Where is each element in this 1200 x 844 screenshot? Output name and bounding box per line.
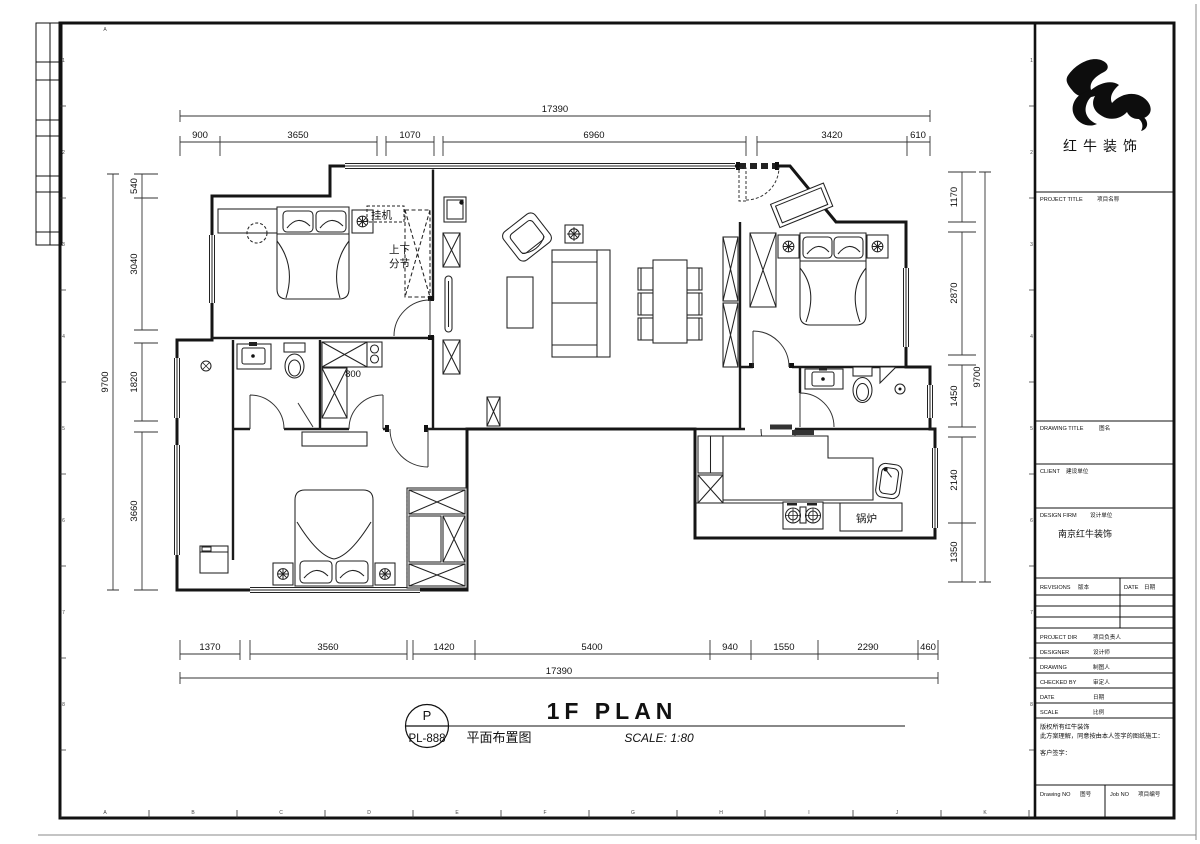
svg-text:3: 3	[1030, 242, 1033, 248]
master-bed	[800, 233, 866, 325]
countertop	[723, 436, 873, 500]
svg-text:5: 5	[62, 426, 65, 432]
drawing-title-en: 1F PLAN	[547, 698, 678, 724]
grid-letter-top: A	[103, 27, 107, 33]
date-col-label: DATE	[1124, 585, 1139, 591]
svg-text:项目编号: 项目编号	[1138, 790, 1161, 798]
boiler-label: 锅炉	[856, 513, 877, 525]
wall-niche	[302, 432, 367, 446]
sofa	[552, 250, 610, 357]
svg-text:6: 6	[1030, 518, 1033, 524]
svg-text:2870: 2870	[949, 282, 960, 303]
design-firm-value: 南京红牛装饰	[1058, 528, 1112, 539]
svg-text:制图人: 制图人	[1093, 663, 1110, 671]
svg-text:1: 1	[62, 58, 65, 64]
svg-text:D: D	[367, 810, 371, 816]
copyright-note: 版权所有红牛装饰	[1040, 723, 1090, 731]
armchair	[500, 211, 554, 264]
client-label: CLIENT	[1040, 469, 1060, 475]
living-room-furniture	[487, 211, 738, 426]
master-bedroom-furniture	[750, 233, 888, 325]
entry-furniture	[771, 183, 833, 228]
svg-text:比例: 比例	[1093, 708, 1105, 716]
company-name: 红牛装饰	[1063, 138, 1143, 154]
entry-door	[739, 167, 779, 201]
grid-letters-bottom: A B C D E F G H I J K	[103, 810, 987, 816]
sheet-letter: P	[423, 708, 432, 723]
svg-text:3040: 3040	[129, 253, 140, 274]
svg-text:1350: 1350	[949, 541, 960, 562]
svg-text:3420: 3420	[821, 130, 842, 141]
drawing-title-footer: P PL-888 1F PLAN 平面布置图 SCALE: 1:80	[406, 698, 906, 748]
svg-text:4: 4	[62, 334, 65, 340]
svg-text:940: 940	[722, 642, 738, 653]
dim-top-total: 17390	[542, 104, 568, 115]
svg-text:1550: 1550	[773, 642, 794, 653]
svg-text:A: A	[103, 810, 107, 816]
svg-text:图号: 图号	[1080, 790, 1092, 798]
svg-text:3: 3	[62, 242, 65, 248]
date-label: DATE	[1040, 695, 1055, 701]
svg-text:3660: 3660	[129, 500, 140, 521]
drawing-label: DRAWING	[1040, 665, 1067, 671]
svg-text:图名: 图名	[1099, 424, 1110, 432]
svg-text:1820: 1820	[129, 371, 140, 392]
svg-text:8: 8	[62, 702, 65, 708]
svg-text:5: 5	[1030, 426, 1033, 432]
svg-text:项目名称: 项目名称	[1097, 195, 1120, 203]
svg-text:1420: 1420	[433, 642, 454, 653]
dining-set	[638, 260, 702, 343]
drawing-sheet: A A B C D E F G H I J K 1 2 3 4 5 6 7 8 …	[0, 0, 1200, 844]
ac-unit-label: 挂机	[371, 209, 392, 222]
svg-text:设计师: 设计师	[1093, 648, 1110, 656]
dining-table	[653, 260, 687, 343]
svg-text:H: H	[719, 810, 723, 816]
svg-text:分节: 分节	[389, 258, 410, 270]
svg-text:7: 7	[62, 610, 65, 616]
master-bathroom-fixtures	[805, 367, 905, 403]
design-firm-label: DESIGN FIRM	[1040, 513, 1077, 519]
bedroom3-furniture	[273, 432, 467, 588]
job-no-label: Job NO	[1110, 792, 1130, 798]
dresser	[218, 209, 282, 233]
hall-closets	[322, 342, 382, 418]
svg-text:6960: 6960	[583, 130, 604, 141]
svg-text:B: B	[191, 810, 195, 816]
toilet	[284, 343, 305, 378]
grid-numbers-left: 1 2 3 4 5 6 7 8	[62, 58, 65, 708]
bed	[295, 490, 373, 586]
svg-text:2: 2	[1030, 150, 1033, 156]
split-note: 上下	[389, 244, 410, 256]
svg-text:1370: 1370	[199, 642, 220, 653]
svg-text:C: C	[279, 810, 283, 816]
svg-text:I: I	[808, 810, 809, 816]
drawing-title-label: DRAWING TITLE	[1040, 426, 1084, 432]
gas-stove	[783, 502, 823, 529]
kitchen-sink	[875, 462, 903, 499]
svg-text:1070: 1070	[399, 130, 420, 141]
svg-text:审定人: 审定人	[1093, 678, 1110, 686]
svg-text:建设单位: 建设单位	[1066, 467, 1089, 475]
toilet	[853, 367, 872, 403]
svg-text:3560: 3560	[317, 642, 338, 653]
grid-numbers-right: 1 2 3 4 5 6 7 8	[1030, 58, 1033, 708]
svg-text:F: F	[543, 810, 546, 816]
coffee-table	[507, 277, 533, 328]
ceiling-light	[565, 225, 583, 243]
svg-text:460: 460	[920, 642, 936, 653]
svg-text:2: 2	[62, 150, 65, 156]
svg-text:1450: 1450	[949, 385, 960, 406]
double-bed	[277, 207, 349, 299]
drawing-scale: SCALE: 1:80	[624, 731, 694, 745]
svg-text:540: 540	[129, 178, 140, 194]
svg-text:此方案理解，同意按由本人签字的图纸施工：: 此方案理解，同意按由本人签字的图纸施工：	[1040, 732, 1164, 740]
cabinet-width-label: 800	[345, 369, 361, 380]
svg-text:2140: 2140	[949, 469, 960, 490]
sheet-number: PL-888	[408, 733, 445, 745]
svg-text:J: J	[896, 810, 899, 816]
svg-text:设计单位: 设计单位	[1090, 511, 1113, 519]
svg-text:6: 6	[62, 518, 65, 524]
red-bull-logo	[1067, 59, 1151, 131]
designer-label: DESIGNER	[1040, 650, 1069, 656]
revisions-label: REVISIONS	[1040, 585, 1071, 591]
floor-plan: 挂机 上下 分节 800 锅炉 17390 900 3650 1070	[100, 104, 991, 684]
svg-text:E: E	[455, 810, 459, 816]
svg-text:2290: 2290	[857, 642, 878, 653]
checked-by-label: CHECKED BY	[1040, 680, 1077, 686]
svg-text:8: 8	[1030, 702, 1033, 708]
svg-text:5400: 5400	[581, 642, 602, 653]
svg-text:项目负责人: 项目负责人	[1093, 633, 1121, 641]
drawing-no-label: Drawing NO	[1040, 792, 1071, 798]
svg-text:7: 7	[1030, 610, 1033, 616]
svg-text:K: K	[983, 810, 987, 816]
svg-text:4: 4	[1030, 334, 1033, 340]
corner-shelf	[880, 367, 896, 383]
entry-bench	[771, 183, 833, 228]
washer-cabinet	[200, 546, 228, 573]
project-dir-label: PROJECT DIR	[1040, 635, 1077, 641]
entry-threshold	[737, 160, 777, 171]
tv-wall-unit	[443, 197, 466, 374]
svg-text:3650: 3650	[287, 130, 308, 141]
fold-marks	[36, 23, 62, 245]
svg-text:610: 610	[910, 130, 926, 141]
svg-text:G: G	[631, 810, 635, 816]
scale-label: SCALE	[1040, 710, 1059, 716]
svg-text:1170: 1170	[949, 187, 960, 207]
bathroom1-fixtures	[237, 342, 305, 378]
drawing-title-cn: 平面布置图	[466, 730, 531, 745]
project-title-label: PROJECT TITLE	[1040, 197, 1083, 203]
svg-text:版本: 版本	[1078, 583, 1090, 591]
svg-text:1: 1	[1030, 58, 1033, 64]
title-block: 红牛装饰 PROJECT TITLE 项目名称 DRAWING TITLE 图名…	[1035, 23, 1174, 818]
service-balcony-fixtures	[200, 361, 228, 573]
wardrobe	[407, 488, 467, 588]
client-signature-label: 客户签字：	[1040, 749, 1071, 757]
svg-text:900: 900	[192, 130, 208, 141]
dim-left-total: 9700	[100, 371, 111, 392]
svg-text:日期: 日期	[1144, 584, 1156, 591]
dim-bottom-total: 17390	[546, 666, 572, 677]
svg-text:日期: 日期	[1093, 694, 1105, 701]
dim-right-total: 9700	[972, 366, 983, 387]
